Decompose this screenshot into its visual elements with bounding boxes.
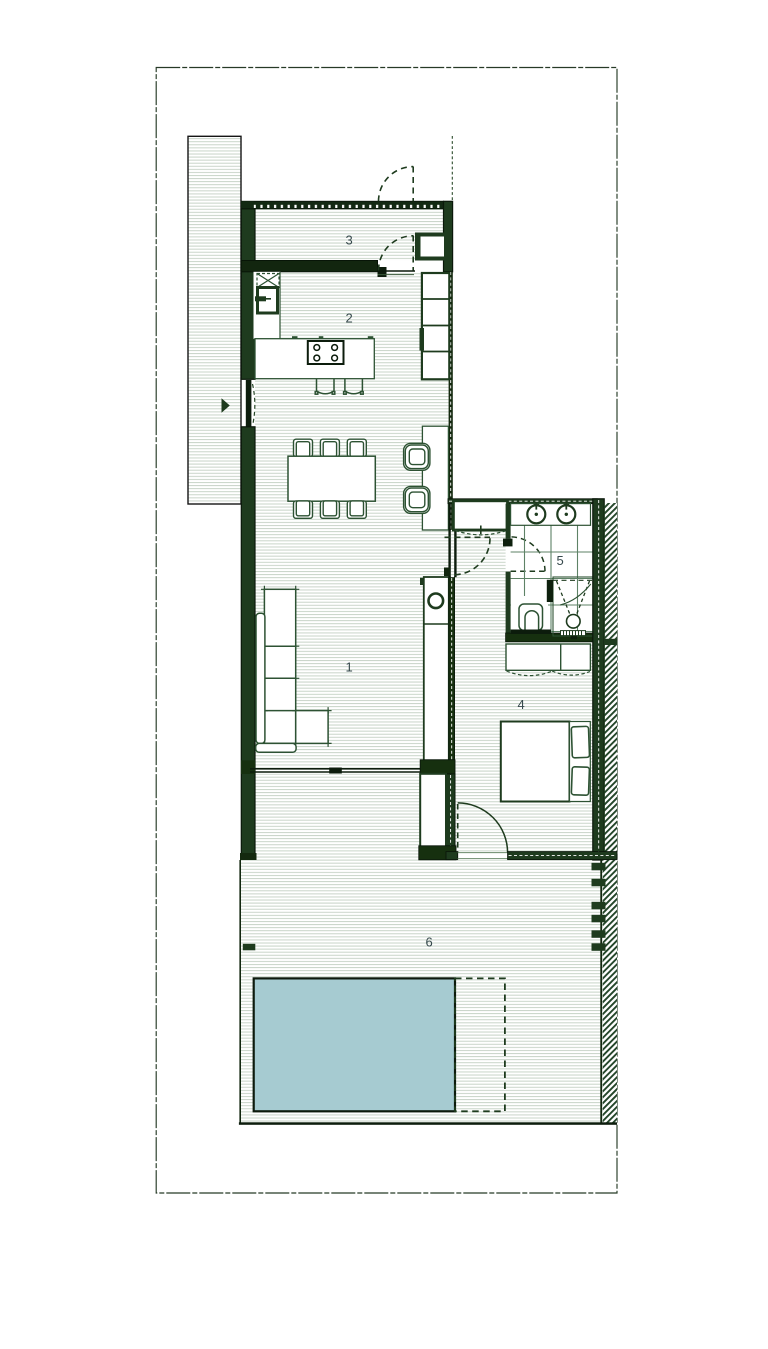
svg-text:6: 6	[426, 935, 433, 950]
svg-text:3: 3	[346, 233, 353, 248]
svg-text:5: 5	[557, 553, 564, 568]
svg-text:4: 4	[518, 697, 525, 712]
svg-text:2: 2	[346, 311, 353, 326]
svg-text:1: 1	[346, 660, 353, 675]
